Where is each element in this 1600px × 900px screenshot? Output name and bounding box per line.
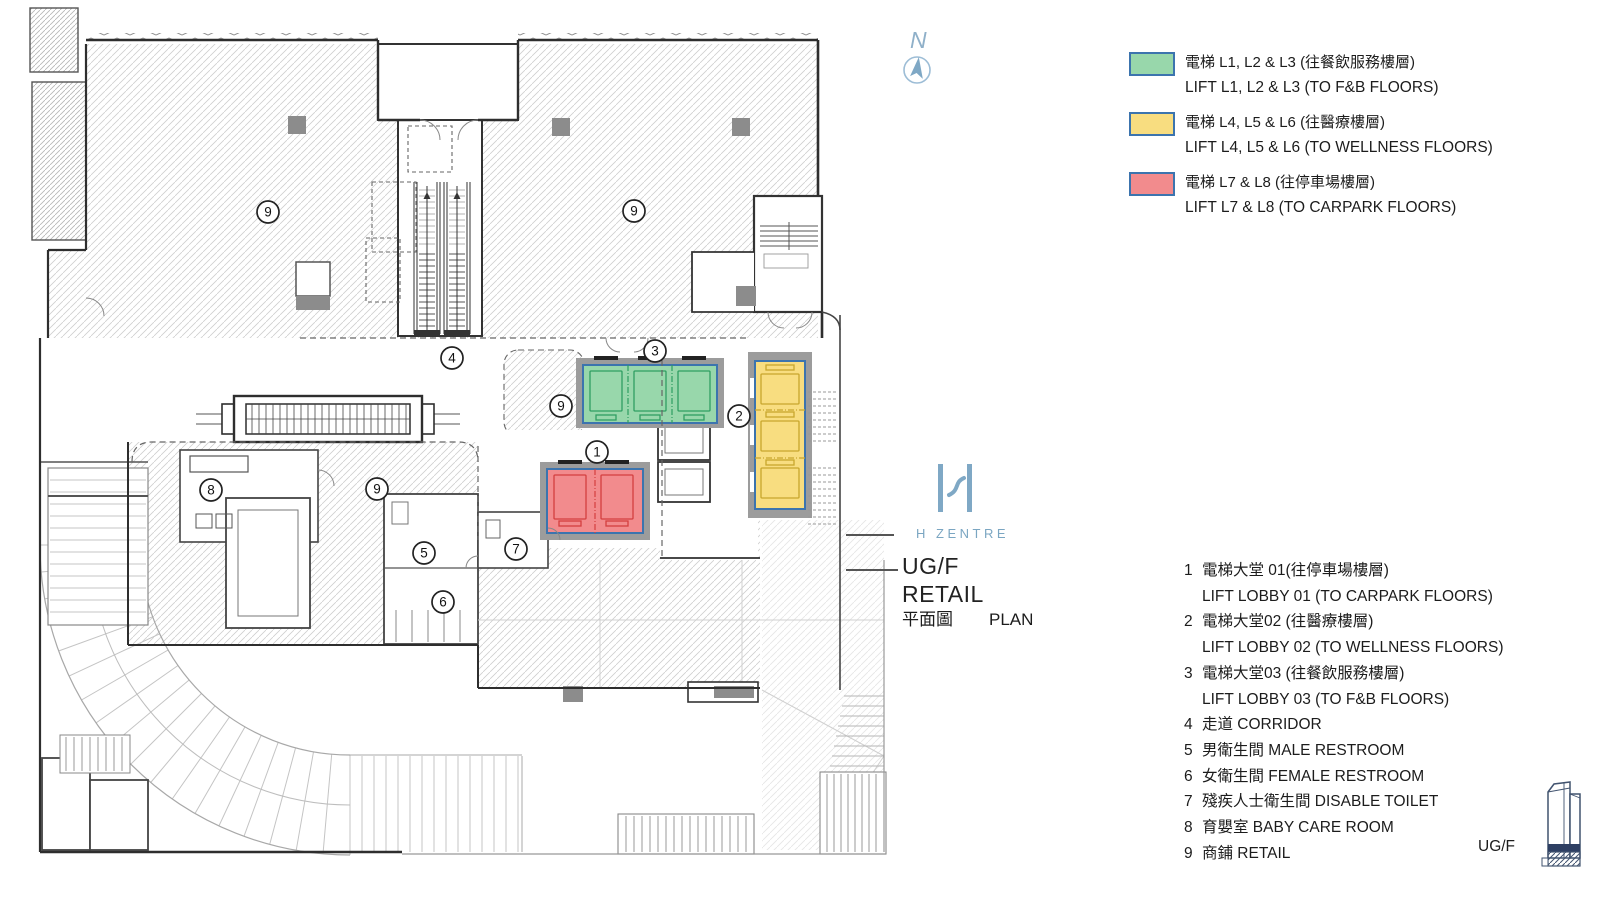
lift-bank-l1-l3 [576,358,724,428]
legend-en: LIFT L1, L2 & L3 (TO F&B FLOORS) [1185,75,1439,101]
legend-swatch-green [1129,52,1175,76]
key-row: 7殘疾人士衛生間 DISABLE TOILET [1184,789,1600,815]
marker-lobby-03: 3 [644,340,666,362]
key-row: 4走道 CORRIDOR [1184,712,1600,738]
legend-item-carpark: 電梯 L7 & L8 (往停車場樓層) LIFT L7 & L8 (TO CAR… [1129,170,1589,221]
floor-plan: 9 9 4 3 9 2 1 8 9 5 7 6 [0,0,900,880]
bottom-left-rooms [42,735,148,850]
key-row: 3電梯大堂03 (往餐飲服務樓層) [1184,661,1600,687]
leader-line-2 [846,569,898,571]
floor-tag: UG/F [1478,838,1515,856]
side-stair-treads [808,392,838,524]
svg-text:1: 1 [593,445,601,460]
north-label: N [910,27,927,53]
legend-swatch-yellow [1129,112,1175,136]
north-arrow: N [890,24,946,90]
marker-female-restroom: 6 [432,591,454,613]
marker-retail-a: 9 [257,201,279,223]
h-zentre-logo-icon [916,462,994,520]
legend-en: LIFT L4, L5 & L6 (TO WELLNESS FLOORS) [1185,135,1493,161]
key-row: 9商鋪 RETAIL [1184,841,1600,867]
brand-logo: H ZENTRE [916,462,994,541]
svg-text:3: 3 [651,344,659,359]
legend-en: LIFT L7 & L8 (TO CARPARK FLOORS) [1185,195,1456,221]
svg-text:9: 9 [373,482,381,497]
marker-disable-toilet: 7 [505,538,527,560]
svg-text:4: 4 [448,351,456,366]
svg-text:9: 9 [264,205,272,220]
lift-bank-l7-l8 [540,462,650,540]
leader-line-1 [846,534,894,536]
legend-item-fb: 電梯 L1, L2 & L3 (往餐飲服務樓層) LIFT L1, L2 & L… [1129,50,1589,101]
svg-text:8: 8 [207,483,215,498]
key-row: LIFT LOBBY 03 (TO F&B FLOORS) [1184,687,1600,713]
marker-baby-care: 8 [200,479,222,501]
svg-text:2: 2 [735,409,743,424]
key-row: LIFT LOBBY 02 (TO WELLNESS FLOORS) [1184,635,1600,661]
floor-title: UG/F [902,552,1033,580]
plan-label-en: PLAN [989,608,1033,632]
title-block: UG/F RETAIL 平面圖 PLAN [902,552,1033,632]
marker-retail-d: 9 [366,478,388,500]
marker-retail-b: 9 [623,200,645,222]
legend-swatch-red [1129,172,1175,196]
key-row: 8育嬰室 BABY CARE ROOM [1184,815,1600,841]
travelator [196,396,460,442]
svg-text:5: 5 [420,546,428,561]
key-row: 6女衛生間 FEMALE RESTROOM [1184,764,1600,790]
restrooms [384,494,478,644]
compass-needle [910,56,926,79]
legend-zh: 電梯 L7 & L8 (往停車場樓層) [1185,170,1456,195]
marker-male-restroom: 5 [413,542,435,564]
building-icon [1540,778,1586,876]
lift-legend: 電梯 L1, L2 & L3 (往餐飲服務樓層) LIFT L1, L2 & L… [1129,50,1589,230]
svg-text:6: 6 [439,595,447,610]
key-row: 5男衛生間 MALE RESTROOM [1184,738,1600,764]
key-list: 1電梯大堂 01(往停車場樓層) LIFT LOBBY 01 (TO CARPA… [1184,558,1600,866]
marker-lobby-02: 2 [728,405,750,427]
marker-corridor: 4 [441,347,463,369]
key-row: LIFT LOBBY 01 (TO CARPARK FLOORS) [1184,584,1600,610]
brand-logo-text: H ZENTRE [916,526,994,541]
key-row: 1電梯大堂 01(往停車場樓層) [1184,558,1600,584]
floor-plan-drawing: 9 9 4 3 9 2 1 8 9 5 7 6 [0,0,900,880]
lift-bank-l4-l6 [748,352,812,518]
svg-text:9: 9 [630,204,638,219]
svg-text:7: 7 [512,542,520,557]
use-title: RETAIL [902,580,1033,608]
entrance-vestibule [378,44,518,120]
plan-label-zh: 平面圖 [902,608,953,632]
key-row: 2電梯大堂02 (往醫療樓層) [1184,609,1600,635]
marker-retail-c: 9 [550,395,572,417]
legend-zh: 電梯 L1, L2 & L3 (往餐飲服務樓層) [1185,50,1439,75]
marker-lobby-01: 1 [586,441,608,463]
svg-text:9: 9 [557,399,565,414]
legend-zh: 電梯 L4, L5 & L6 (往醫療樓層) [1185,110,1493,135]
legend-item-wellness: 電梯 L4, L5 & L6 (往醫療樓層) LIFT L4, L5 & L6 … [1129,110,1589,161]
